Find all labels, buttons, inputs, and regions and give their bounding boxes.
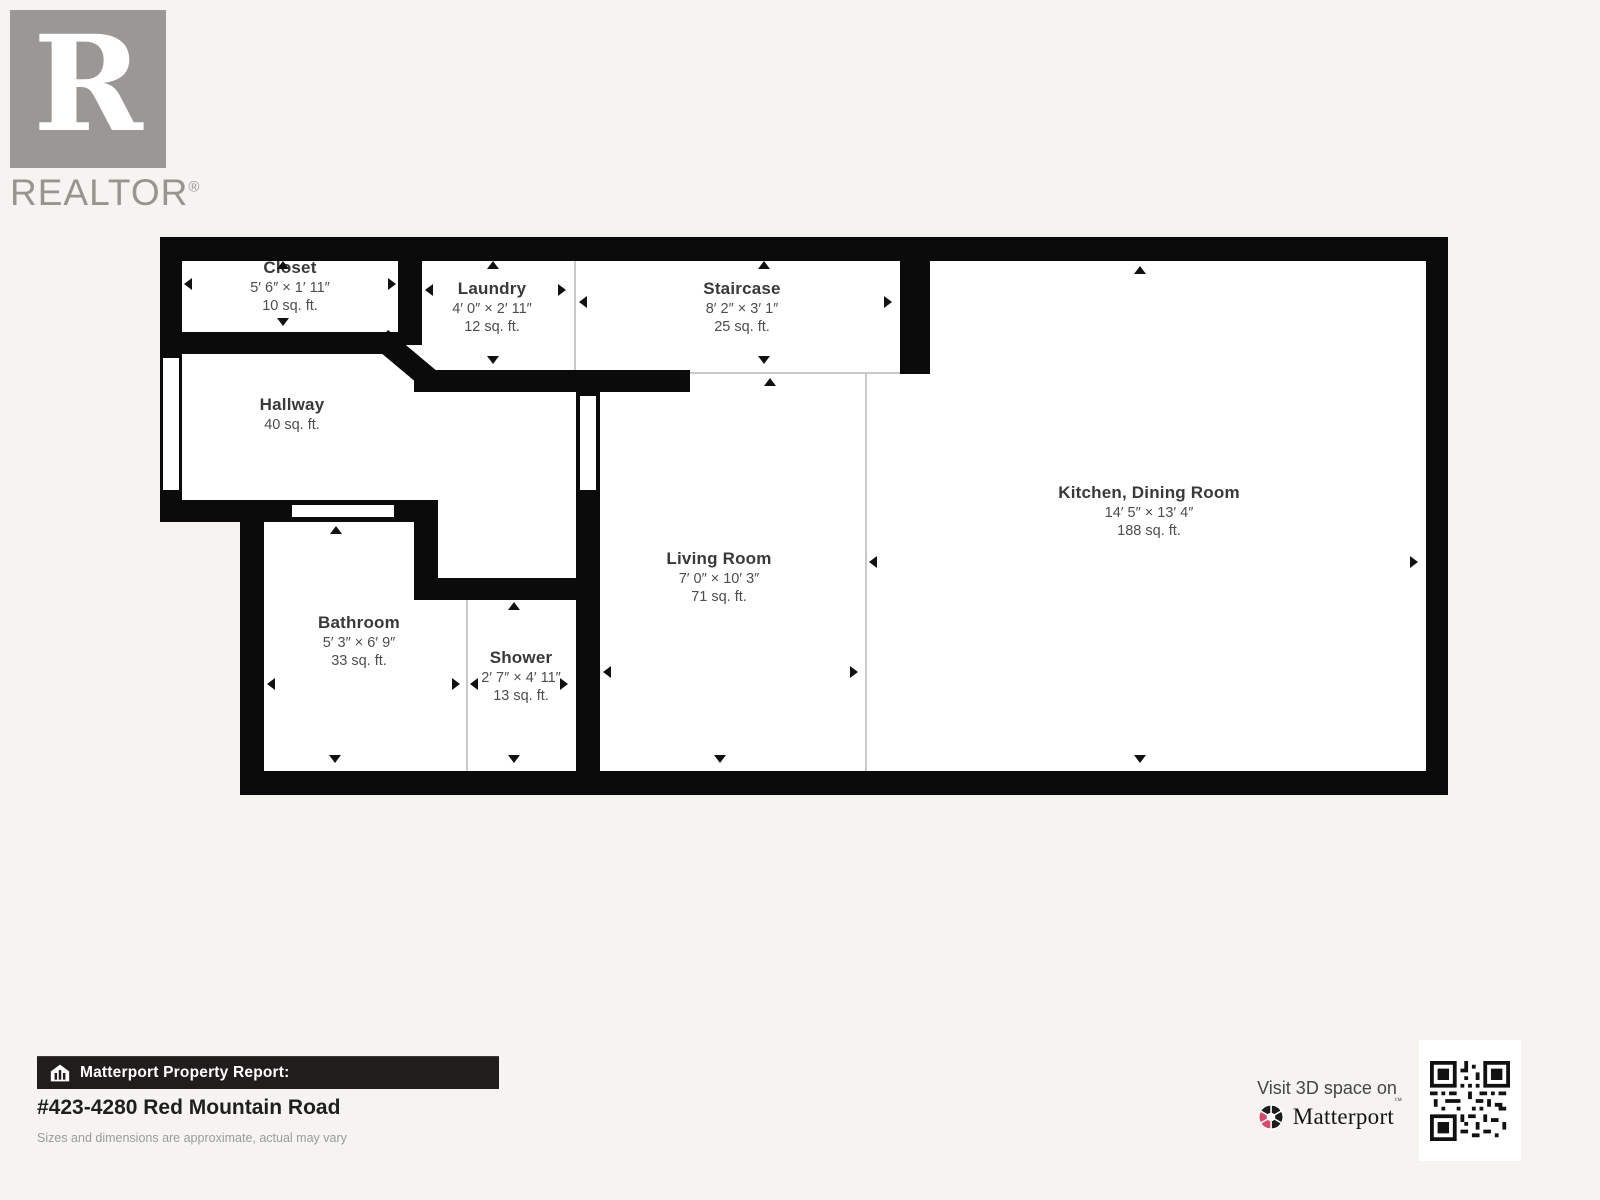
dim-arrow-left-icon bbox=[579, 296, 587, 308]
dim-arrow-left-icon bbox=[425, 284, 433, 296]
realtor-logo: R REALTOR® bbox=[10, 10, 200, 214]
wall-laundry-bottom bbox=[414, 370, 690, 392]
wall-bottom bbox=[240, 771, 1448, 795]
divider-bathroom-shower bbox=[466, 598, 468, 771]
dim-arrow-up-icon bbox=[508, 602, 520, 610]
report-title: Matterport Property Report: bbox=[80, 1064, 290, 1082]
dim-arrow-up-icon bbox=[487, 261, 499, 269]
dim-arrow-right-icon bbox=[388, 278, 396, 290]
wall-top bbox=[160, 237, 1448, 261]
dim-arrow-right-icon bbox=[1410, 556, 1418, 568]
registered-mark: ® bbox=[188, 179, 200, 196]
dim-arrow-down-icon bbox=[277, 318, 289, 326]
wall-closet-laundry bbox=[398, 237, 422, 345]
dim-arrow-right-icon bbox=[558, 284, 566, 296]
divider-staircase-living bbox=[690, 372, 900, 374]
page: R REALTOR® Closet bbox=[0, 0, 1600, 1200]
wall-staircase-kitchen bbox=[900, 237, 930, 374]
matterport-logo: Matterport™ bbox=[1244, 1102, 1414, 1132]
divider-laundry-staircase bbox=[574, 261, 576, 371]
realtor-logo-mark: R bbox=[10, 10, 166, 168]
dim-arrow-up-icon bbox=[764, 378, 776, 386]
dim-arrow-up-icon bbox=[330, 526, 342, 534]
dim-arrow-right-icon bbox=[850, 666, 858, 678]
wall-right bbox=[1426, 237, 1448, 795]
wall-shower-top bbox=[414, 578, 600, 600]
wall-bathroom-left bbox=[240, 500, 264, 795]
dim-arrow-down-icon bbox=[758, 356, 770, 364]
disclaimer-text: Sizes and dimensions are approximate, ac… bbox=[37, 1131, 347, 1145]
dim-arrow-left-icon bbox=[267, 678, 275, 690]
window-opening-living-wall bbox=[580, 396, 596, 490]
dim-arrow-down-icon bbox=[714, 755, 726, 763]
divider-living-kitchen bbox=[865, 374, 867, 771]
trademark-mark: ™ bbox=[1394, 1096, 1402, 1105]
wall-closet-bottom bbox=[160, 332, 402, 354]
dim-arrow-left-icon bbox=[869, 556, 877, 568]
qr-code bbox=[1419, 1040, 1521, 1161]
property-address: #423-4280 Red Mountain Road bbox=[37, 1096, 340, 1120]
dim-arrow-right-icon bbox=[884, 296, 892, 308]
dim-arrow-down-icon bbox=[508, 755, 520, 763]
dim-arrow-left-icon bbox=[184, 278, 192, 290]
dim-arrow-down-icon bbox=[1134, 755, 1146, 763]
dim-arrow-right-icon bbox=[452, 678, 460, 690]
realtor-wordmark: REALTOR® bbox=[10, 172, 200, 214]
realtor-r-icon: R bbox=[33, 19, 143, 151]
dim-arrow-up-icon bbox=[1134, 266, 1146, 274]
qr-pattern-icon bbox=[1430, 1061, 1510, 1141]
dim-arrow-up-icon bbox=[758, 261, 770, 269]
dim-arrow-left-icon bbox=[470, 678, 478, 690]
matterport-wordmark: Matterport™ bbox=[1293, 1104, 1403, 1130]
report-header-bar: Matterport Property Report: bbox=[37, 1056, 499, 1089]
house-scan-icon bbox=[50, 1063, 70, 1083]
dim-arrow-right-icon bbox=[560, 678, 568, 690]
dim-arrow-up-icon bbox=[277, 261, 289, 269]
window-opening-left-wall bbox=[163, 358, 179, 490]
matterport-icon bbox=[1256, 1102, 1286, 1132]
plan-interior bbox=[576, 237, 1448, 795]
dim-arrow-left-icon bbox=[603, 666, 611, 678]
dim-arrow-down-icon bbox=[487, 356, 499, 364]
door-opening-bathroom bbox=[292, 505, 394, 517]
dim-arrow-down-icon bbox=[329, 755, 341, 763]
